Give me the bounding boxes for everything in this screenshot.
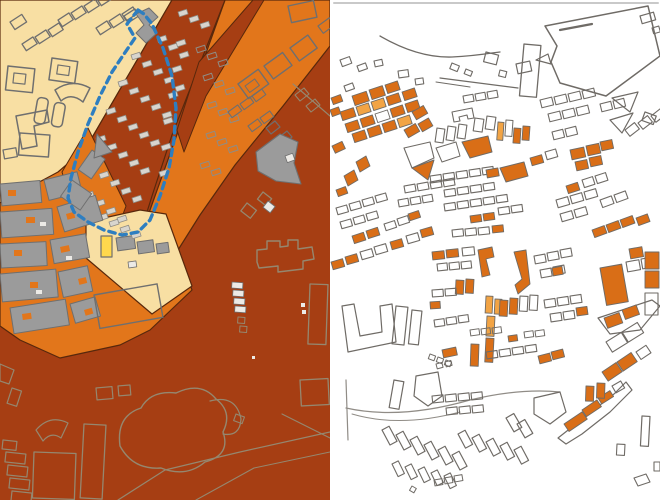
right-map-panel-shape-107 <box>430 301 440 309</box>
left-map-panel-shape-86 <box>36 290 42 294</box>
right-map-panel-shape-124 <box>576 306 588 315</box>
right-map-panel-shape-66 <box>600 140 614 151</box>
right-map-panel-shape-91 <box>446 249 459 258</box>
right-map-panel-shape-147 <box>585 386 594 401</box>
left-map-panel-shape-69 <box>58 266 93 298</box>
right-map-panel-shape-104 <box>499 300 508 316</box>
left-map-panel-shape-82 <box>22 313 32 320</box>
left-map-panel-shape-68 <box>0 269 58 302</box>
left-map-panel-shape-27 <box>128 261 137 268</box>
map-figure-svg <box>0 0 660 500</box>
left-map-panel <box>0 0 335 500</box>
right-map-panel-shape-161 <box>470 214 482 222</box>
right-map-panel-shape-56 <box>513 128 521 143</box>
left-map-panel-shape-101 <box>233 290 244 297</box>
left-map-panel-shape-85 <box>66 256 72 260</box>
right-map-panel-shape-73 <box>486 168 499 178</box>
right-map-panel-shape-113 <box>629 247 644 259</box>
right-map-panel-shape-114 <box>645 252 659 269</box>
right-map-panel-shape-164 <box>492 225 504 233</box>
right-map-panel-shape-57 <box>522 126 530 140</box>
left-map-panel-shape-107 <box>252 356 255 359</box>
left-map-panel-shape-78 <box>14 250 22 256</box>
left-map-panel-shape-101 <box>232 282 243 289</box>
right-map-panel-shape-0 <box>330 0 660 500</box>
left-map-panel-shape-66 <box>0 242 47 268</box>
left-map-panel-shape-23 <box>101 236 112 257</box>
right-map-panel-shape-110 <box>470 344 479 366</box>
right-map-panel-shape-166 <box>508 335 518 342</box>
right-map-panel-shape-99 <box>552 266 563 276</box>
right-map-panel-shape-147 <box>596 383 605 398</box>
right-map-panel-shape-161 <box>483 212 495 220</box>
left-map-panel-shape-101 <box>235 306 246 313</box>
left-map-panel-shape-103 <box>301 303 305 307</box>
right-map-panel-shape-65 <box>586 143 601 155</box>
right-map-panel-shape-114 <box>645 271 659 288</box>
left-map-panel-shape-25 <box>137 240 155 254</box>
right-map-panel-shape-68 <box>589 156 603 167</box>
right-map-panel-shape-67 <box>575 160 589 171</box>
right-map-panel-shape-91 <box>432 251 445 260</box>
left-map-panel-shape-80 <box>30 282 38 288</box>
left-map-panel-shape-75 <box>8 190 16 196</box>
left-map-panel-shape-62 <box>0 181 42 206</box>
left-map-panel-shape-84 <box>40 222 46 226</box>
right-map-panel-shape-104 <box>509 298 518 314</box>
right-map-panel-shape-100 <box>485 296 493 313</box>
map-comparison-figure <box>0 0 660 500</box>
right-map-panel-shape-95 <box>465 279 474 293</box>
right-map-panel <box>330 0 660 500</box>
left-map-panel-shape-101 <box>234 298 245 305</box>
left-map-panel-shape-26 <box>156 242 169 254</box>
right-map-panel-shape-54 <box>497 122 504 140</box>
left-map-panel-shape-76 <box>26 217 35 223</box>
left-map-panel-shape-103 <box>302 310 306 314</box>
